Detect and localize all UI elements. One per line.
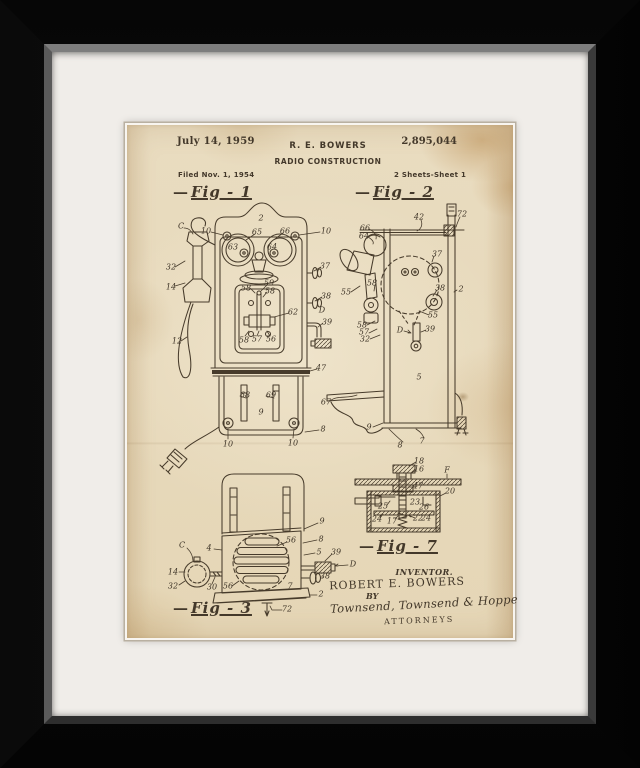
ref-numeral-fig1-63: 63 [228,243,238,252]
ref-numeral-fig1-10: 10 [288,439,298,448]
ref-numeral-fig1-10: 10 [201,227,211,236]
ref-numeral-fig1-10: 10 [321,227,331,236]
ref-numeral-fig2-64: 64 [359,232,369,241]
ref-numeral-fig2-58: 58 [367,279,377,288]
ref-numeral-fig2-55: 55 [341,288,351,297]
ref-numeral-fig3-32: 32 [168,582,178,591]
ref-numeral-fig3-8: 8 [318,535,323,544]
patent-line-art [127,125,513,638]
ref-numeral-fig1-58: 58 [241,284,251,293]
ref-numeral-fig1-37: 37 [320,262,330,271]
fig2-label: Fig - 2 [355,183,373,201]
ref-numeral-fig1-66: 66 [280,227,290,236]
ref-numeral-fig7-25: 25 [378,502,388,511]
ref-numeral-fig3-38: 38 [320,572,330,581]
ref-numeral-fig2-7: 7 [419,437,424,446]
ref-numeral-fig3-39: 39 [331,548,341,557]
ref-numeral-fig1-69: 69 [266,391,276,400]
ref-numeral-fig2-38: 38 [435,284,445,293]
ref-numeral-fig3-56: 56 [223,582,233,591]
ref-numeral-fig1-62: 62 [288,308,298,317]
ref-numeral-fig7-47: 47 [413,482,423,491]
ref-numeral-fig1-64: 64 [267,243,277,252]
ref-numeral-fig2-D: D [397,326,403,335]
ref-numeral-fig1-12: 12 [172,337,182,346]
fig3-label: Fig - 3 [173,599,191,617]
patent-date: July 14, 1959 [177,136,255,147]
ref-numeral-fig3-D: D [350,560,356,569]
ref-numeral-fig1-38: 38 [321,292,331,301]
ref-numeral-fig2-2: 2 [458,285,463,294]
ref-numeral-fig7-16: 16 [414,465,424,474]
ref-numeral-fig7-20: 20 [445,487,455,496]
fig2-drawing [327,204,468,442]
ref-numeral-fig2-8: 8 [397,441,402,450]
ref-numeral-fig3-2: 2 [318,590,323,599]
ref-numeral-fig2-39: 39 [425,325,435,334]
ref-numeral-fig3-5: 5 [316,548,321,557]
ref-numeral-fig7-24: 24 [421,514,431,523]
inventor-header: R. E. BOWERS [289,141,366,151]
ref-numeral-fig1-39: 39 [322,318,332,327]
patent-title: RADIO CONSTRUCTION [275,157,382,166]
ref-numeral-fig3-C: C [179,541,185,550]
ref-numeral-fig2-32: 32 [360,335,370,344]
framed-patent-print: July 14, 1959 R. E. BOWERS 2,895,044 RAD… [0,0,640,768]
ref-numeral-fig7-17: 17 [387,517,397,526]
ref-numeral-fig1-C: C [178,222,184,231]
patent-number: 2,895,044 [401,136,457,147]
fig1-label: Fig - 1 [173,183,191,201]
ref-numeral-fig1-65: 65 [252,228,262,237]
ref-numeral-fig1-56: 56 [266,335,276,344]
ref-numeral-fig2-5: 5 [416,373,421,382]
ref-numeral-fig1-10: 10 [223,440,233,449]
ref-numeral-fig1-67: 67 [321,398,331,407]
ref-numeral-fig3-30: 30 [207,583,217,592]
ref-numeral-fig1-9: 9 [258,408,263,417]
ref-numeral-fig1-47: 47 [316,364,326,373]
ref-numeral-fig1-57: 57 [252,335,262,344]
ref-numeral-fig1-D: D [319,306,325,315]
ref-numeral-fig2-9: 9 [366,423,371,432]
ref-numeral-fig1-14: 14 [166,283,176,292]
ref-numeral-fig2-55: 55 [428,311,438,320]
ref-numeral-fig1-58: 58 [239,336,249,345]
ref-numeral-fig1-8: 8 [320,425,325,434]
ref-numeral-fig3-9: 9 [319,517,324,526]
ref-numeral-fig1-58: 58 [265,287,275,296]
ref-numeral-fig2-37: 37 [432,250,442,259]
fig7-label: Fig - 7 [359,537,377,555]
patent-sheet: July 14, 1959 R. E. BOWERS 2,895,044 RAD… [127,125,513,638]
ref-numeral-fig2-72: 72 [457,210,467,219]
ref-numeral-fig3-72: 72 [282,605,292,614]
ref-numeral-fig3-4: 4 [206,544,211,553]
ref-numeral-fig7-26: 26 [419,503,429,512]
ref-numeral-fig3-56: 56 [286,536,296,545]
ref-numeral-fig1-32: 32 [166,263,176,272]
sheet-count: 2 Sheets-Sheet 1 [394,171,466,179]
ref-numeral-fig3-7: 7 [287,582,292,591]
ref-numeral-fig1-2: 2 [258,214,263,223]
ref-numeral-fig7-24: 24 [372,515,382,524]
filed-date: Filed Nov. 1, 1954 [178,171,254,179]
ref-numeral-fig1-68: 68 [240,391,250,400]
ref-numeral-fig3-14: 14 [168,568,178,577]
ref-numeral-fig7-F: F [444,466,450,475]
ref-numeral-fig2-42: 42 [414,213,424,222]
